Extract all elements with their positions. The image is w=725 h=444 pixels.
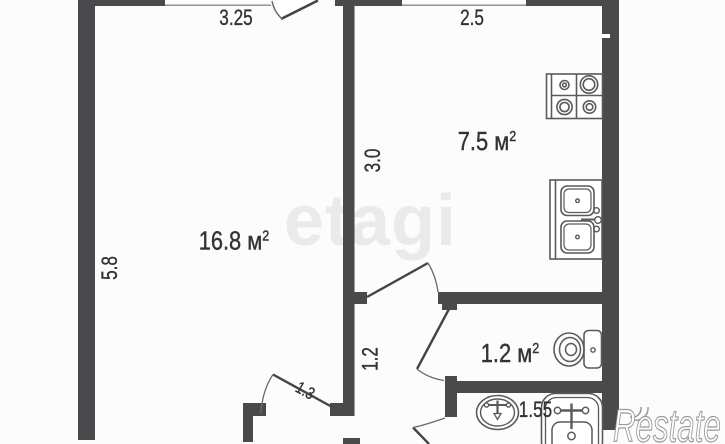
svg-text:1.55: 1.55 [519,398,552,423]
svg-text:5.8: 5.8 [98,256,123,280]
svg-text:3.25: 3.25 [219,6,252,31]
svg-text:3.0: 3.0 [361,149,386,173]
svg-text:Restate: Restate [613,401,721,444]
svg-text:16.8 м2: 16.8 м2 [199,226,270,256]
svg-text:2.5: 2.5 [460,6,484,31]
svg-text:1.2 м2: 1.2 м2 [481,339,539,369]
svg-text:1.2: 1.2 [359,347,384,371]
svg-text:7.5 м2: 7.5 м2 [458,127,516,157]
svg-text:etagi: etagi [284,181,457,261]
